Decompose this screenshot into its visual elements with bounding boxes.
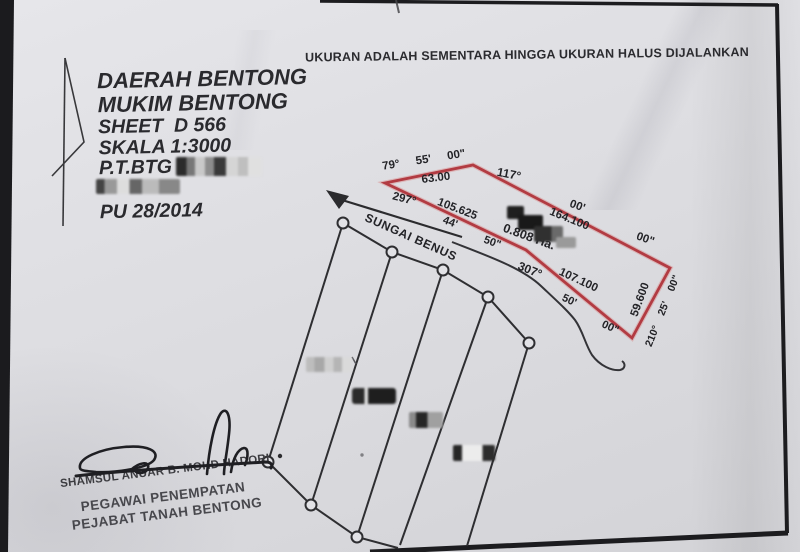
neatline-right bbox=[777, 4, 787, 533]
neatline-top bbox=[320, 1, 778, 5]
redaction-parcel-4 bbox=[556, 237, 576, 248]
redaction-lot-4 bbox=[453, 445, 495, 461]
photographed-survey-plan: UKURAN ADALAH SEMENTARA HINGGA UKURAN HA… bbox=[0, 0, 800, 552]
river-arrow-head bbox=[326, 190, 349, 209]
redaction-title-2 bbox=[96, 179, 180, 194]
redaction-title-1 bbox=[176, 157, 262, 176]
redaction-lot-1 bbox=[306, 357, 352, 372]
title-pt-btg: P.T.BTG bbox=[99, 158, 172, 179]
title-mukim: MUKIM BENTONG bbox=[97, 90, 288, 116]
lot-boundaries bbox=[268, 223, 529, 548]
title-block: DAERAH BENTONG MUKIM BENTONG SHEET D 566… bbox=[96, 0, 321, 242]
survey-point-markers bbox=[263, 218, 535, 543]
ink-dot bbox=[360, 453, 363, 456]
ink-dot bbox=[278, 454, 282, 458]
small-tick bbox=[352, 357, 356, 364]
neatline-bottom bbox=[370, 533, 788, 552]
margin-sliver-flag bbox=[52, 58, 84, 176]
photo-left-edge bbox=[0, 0, 14, 552]
redaction-lot-3 bbox=[409, 412, 443, 428]
margin-sliver-line bbox=[63, 58, 65, 226]
title-pu: PU 28/2014 bbox=[100, 201, 203, 223]
redaction-lot-2 bbox=[352, 388, 396, 404]
